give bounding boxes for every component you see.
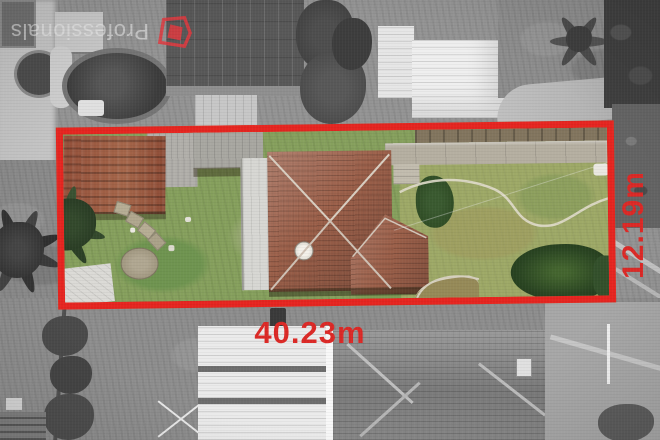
carport-roof-white — [378, 26, 414, 98]
property-boundary — [56, 120, 616, 309]
hedge-right-edge — [604, 0, 660, 108]
warehouse-roof-band2 — [198, 398, 332, 404]
chimney — [516, 358, 532, 377]
garden-hose-path — [400, 178, 610, 228]
depth-label: 12.19m — [617, 160, 657, 290]
aerial-photo: 40.23m 12.19m Professionals — [0, 0, 660, 440]
professionals-logo-icon — [156, 12, 194, 50]
watermark-brand-text: Professionals — [10, 18, 149, 44]
white-box-bottom-left — [6, 398, 22, 410]
warehouse-roof-band — [198, 366, 332, 372]
roof-ridge-line — [269, 154, 390, 222]
shed-bottom-left-corner — [0, 412, 46, 440]
neighbor-roof-white — [412, 40, 507, 118]
tree-bottom-right — [598, 404, 654, 440]
garage-roof-north — [195, 95, 257, 127]
width-label: 40.23m — [238, 315, 382, 351]
pole-line — [607, 324, 610, 384]
roof-ridge-line — [270, 220, 391, 290]
yard-lines-overlay — [63, 127, 609, 302]
garden-bed-edge — [417, 276, 479, 298]
pool-step — [78, 100, 104, 116]
watermark: Professionals — [26, 8, 194, 54]
power-line — [393, 161, 609, 230]
